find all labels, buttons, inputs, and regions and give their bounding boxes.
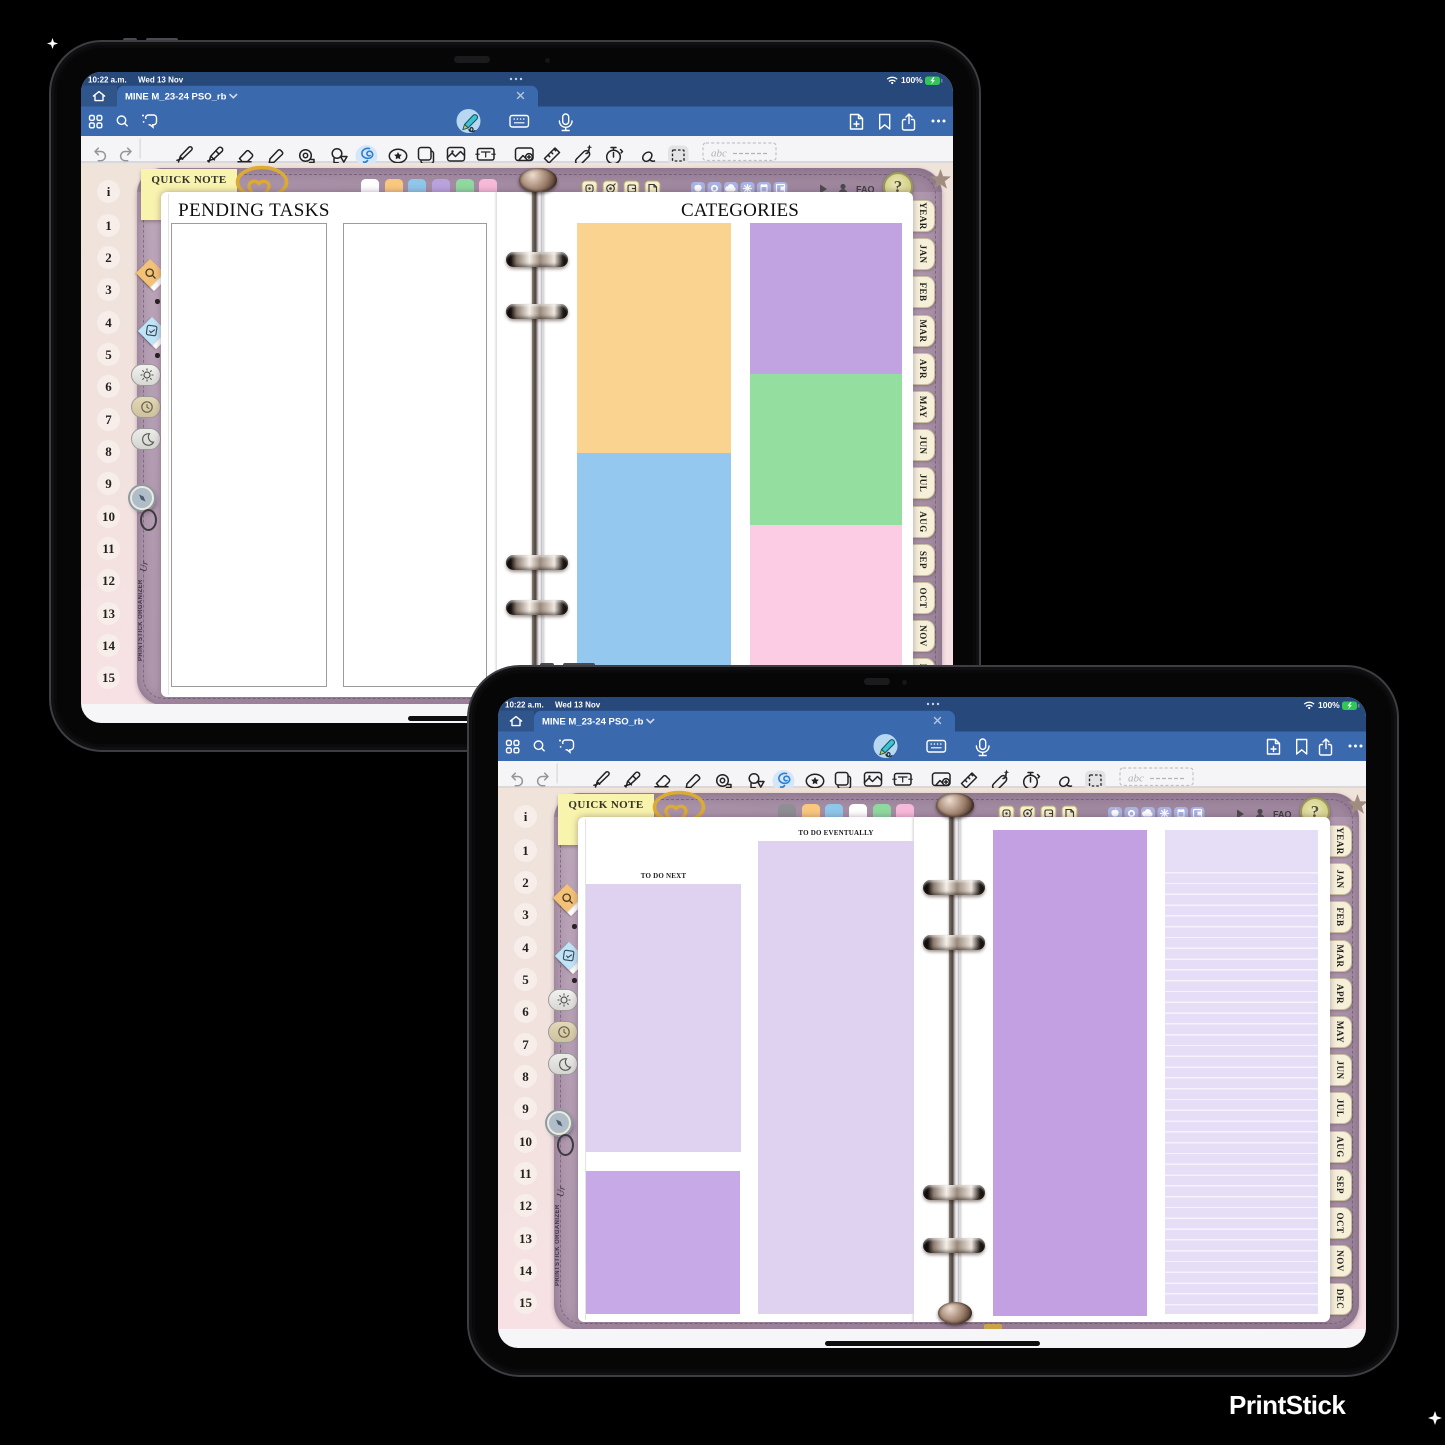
svg-text:100%: 100% [901,75,923,85]
svg-text:Wed 13 Nov: Wed 13 Nov [138,76,184,85]
svg-text:MINE M_23-24 PSO_rb: MINE M_23-24 PSO_rb [125,92,227,103]
svg-text:100%: 100% [1318,700,1340,710]
svg-text:10:22 a.m.: 10:22 a.m. [88,76,127,85]
svg-text:10:22 a.m.: 10:22 a.m. [505,701,544,710]
svg-text:abc: abc [1128,773,1144,785]
svg-text:abc: abc [711,148,727,160]
svg-text:MINE M_23-24 PSO_rb: MINE M_23-24 PSO_rb [542,717,644,728]
svg-text:Wed 13 Nov: Wed 13 Nov [555,701,601,710]
